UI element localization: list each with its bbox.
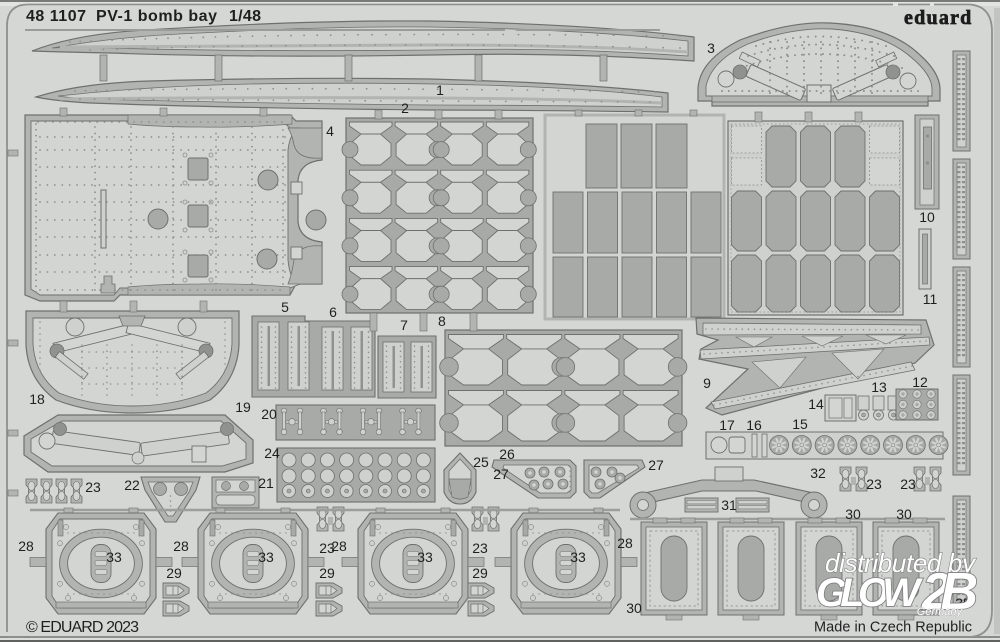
svg-text:13: 13 xyxy=(871,379,887,395)
svg-text:33: 33 xyxy=(106,549,122,565)
svg-text:29: 29 xyxy=(472,565,488,581)
svg-text:27: 27 xyxy=(648,457,664,473)
svg-text:3: 3 xyxy=(707,40,715,56)
svg-text:17: 17 xyxy=(719,417,735,433)
svg-text:GLOW: GLOW xyxy=(816,571,923,615)
svg-text:16: 16 xyxy=(746,417,762,433)
svg-text:2: 2 xyxy=(401,100,409,116)
svg-text:15: 15 xyxy=(792,416,808,432)
svg-text:9: 9 xyxy=(703,375,711,391)
svg-text:23: 23 xyxy=(866,476,882,492)
svg-text:1: 1 xyxy=(436,82,444,98)
svg-text:28: 28 xyxy=(18,538,34,554)
svg-text:14: 14 xyxy=(808,396,824,412)
svg-text:21: 21 xyxy=(258,475,274,491)
svg-text:25: 25 xyxy=(473,454,489,470)
svg-text:28: 28 xyxy=(331,538,347,554)
svg-text:48 1107: 48 1107 xyxy=(26,8,86,25)
svg-text:PV-1 bomb bay: PV-1 bomb bay xyxy=(96,8,217,25)
svg-text:12: 12 xyxy=(912,374,928,390)
svg-text:33: 33 xyxy=(417,549,433,565)
svg-text:Germany: Germany xyxy=(917,606,964,618)
svg-text:32: 32 xyxy=(810,465,826,481)
svg-text:31: 31 xyxy=(721,497,737,513)
svg-text:27: 27 xyxy=(493,466,509,482)
svg-text:11: 11 xyxy=(923,291,938,307)
svg-text:33: 33 xyxy=(570,549,586,565)
svg-text:© EDUARD 2023: © EDUARD 2023 xyxy=(26,619,139,636)
svg-text:29: 29 xyxy=(166,565,182,581)
svg-text:20: 20 xyxy=(261,406,277,422)
svg-text:23: 23 xyxy=(900,476,916,492)
svg-text:7: 7 xyxy=(400,317,408,333)
svg-text:6: 6 xyxy=(329,304,337,320)
svg-text:10: 10 xyxy=(919,209,935,225)
svg-text:33: 33 xyxy=(258,549,274,565)
svg-text:26: 26 xyxy=(499,446,515,462)
svg-text:30: 30 xyxy=(626,600,642,616)
svg-text:28: 28 xyxy=(173,538,189,554)
svg-text:1/48: 1/48 xyxy=(229,8,261,25)
svg-text:Made in Czech Republic: Made in Czech Republic xyxy=(814,620,972,636)
svg-text:8: 8 xyxy=(438,313,446,329)
svg-text:23: 23 xyxy=(472,540,488,556)
svg-text:30: 30 xyxy=(896,506,912,522)
svg-text:23: 23 xyxy=(85,479,101,495)
svg-text:30: 30 xyxy=(845,506,861,522)
svg-text:28: 28 xyxy=(617,535,633,551)
svg-text:5: 5 xyxy=(281,299,289,315)
svg-text:24: 24 xyxy=(264,445,280,461)
svg-text:29: 29 xyxy=(319,565,335,581)
svg-text:22: 22 xyxy=(124,477,140,493)
svg-text:4: 4 xyxy=(326,123,334,139)
svg-text:18: 18 xyxy=(29,391,45,407)
svg-text:19: 19 xyxy=(235,399,251,415)
